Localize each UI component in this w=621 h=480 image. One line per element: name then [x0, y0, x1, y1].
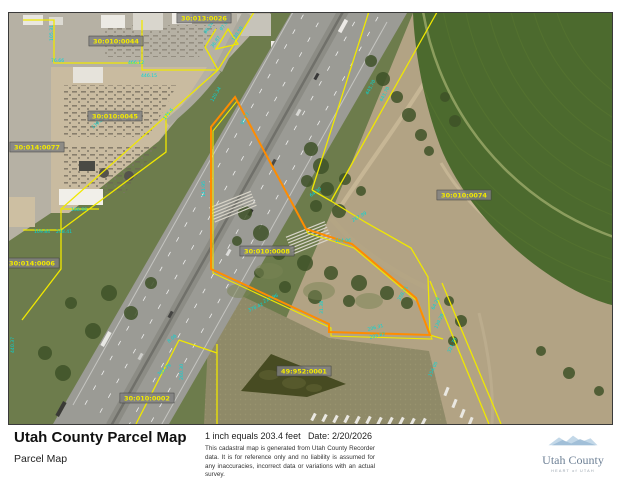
disclaimer-text: This cadastral map is generated from Uta… [205, 445, 375, 480]
parcel-label[interactable]: 30:014:0006 [9, 258, 59, 268]
dimension-label: 31.38 [319, 301, 325, 314]
map-terrain: 76.66466.12105.31446.15175.6139.8186.249… [9, 13, 612, 424]
utah-county-logo: Utah County HEART of UTAH [532, 433, 614, 473]
aerial-parcel-map[interactable]: 76.66466.12105.31446.15175.6139.8186.249… [9, 13, 612, 424]
svg-text:30:010:0074: 30:010:0074 [441, 191, 487, 199]
dimension-label: 105.31 [49, 25, 55, 41]
parcel-label[interactable]: 30:010:0045 [88, 111, 142, 121]
dimension-label: 466.12 [128, 60, 144, 66]
logo-tagline: HEART of UTAH [532, 469, 614, 473]
svg-text:30:013:0026: 30:013:0026 [181, 14, 227, 22]
parcel-label[interactable]: 30:013:0026 [177, 13, 231, 23]
parcel-label[interactable]: 30:010:0002 [120, 393, 174, 403]
dimension-label: 76.66 [51, 58, 64, 64]
parcel-label[interactable]: 30:010:0008 [240, 246, 294, 256]
date-label: Date: 2/20/2026 [300, 431, 372, 441]
page-subtitle: Parcel Map [14, 453, 67, 465]
svg-text:30:010:0008: 30:010:0008 [244, 247, 290, 255]
svg-text:30:010:0044: 30:010:0044 [93, 37, 139, 45]
page-title: Utah County Parcel Map [14, 429, 187, 446]
logo-name: Utah County [532, 453, 614, 468]
svg-text:30:010:0002: 30:010:0002 [124, 394, 170, 402]
parcel-label[interactable]: 49:952:0001 [277, 366, 331, 376]
dimension-label: 260.30 [179, 364, 185, 380]
map-viewport[interactable]: 76.66466.12105.31446.15175.6139.8186.249… [8, 12, 613, 425]
dimension-label: 168.66 [71, 207, 87, 213]
dimension-label: 141.95 [201, 181, 207, 197]
dimension-label: 248.41 [56, 229, 72, 235]
dimension-label: 440.37 [10, 337, 16, 353]
svg-text:30:014:0006: 30:014:0006 [9, 259, 55, 267]
dimension-label: 446.15 [141, 73, 157, 79]
svg-text:30:010:0045: 30:010:0045 [92, 112, 138, 120]
scale-text: 1 inch equals 203.4 feet [205, 431, 301, 441]
svg-text:30:014:0077: 30:014:0077 [14, 143, 60, 151]
map-footer: Utah County Parcel Map Parcel Map 1 inch… [0, 425, 621, 480]
svg-text:49:952:0001: 49:952:0001 [281, 367, 327, 375]
parcel-label[interactable]: 30:014:0077 [10, 142, 64, 152]
dimension-label: 104.06 [335, 238, 351, 244]
parcel-label[interactable]: 30:010:0074 [437, 190, 491, 200]
parcel-map-page: 76.66466.12105.31446.15175.6139.8186.249… [0, 0, 621, 480]
mountain-logo-icon [543, 433, 603, 447]
dimension-label: 109.84 [34, 229, 50, 235]
parcel-label[interactable]: 30:010:0044 [89, 36, 143, 46]
